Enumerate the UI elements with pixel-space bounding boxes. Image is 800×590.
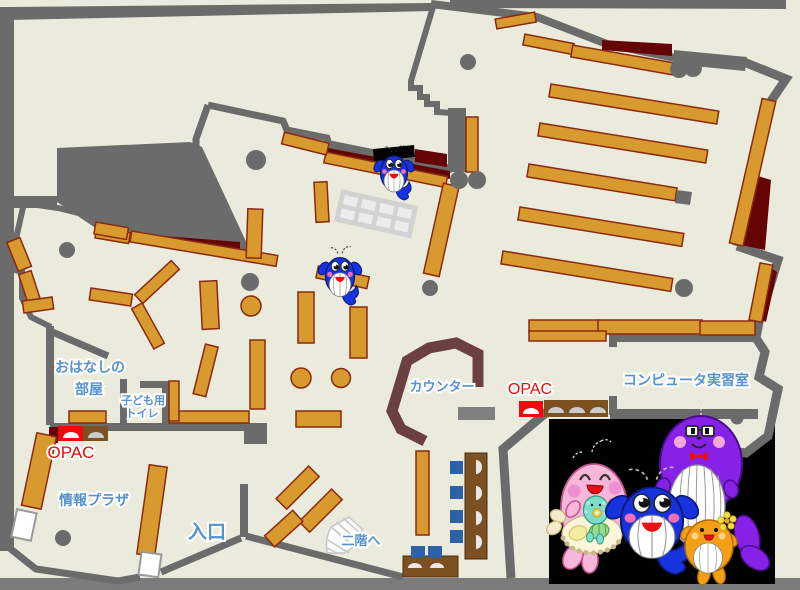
svg-text:コンピュータ実習室: コンピュータ実習室 [623, 372, 749, 388]
svg-text:おはなしの: おはなしの [55, 359, 125, 375]
svg-text:部屋: 部屋 [75, 381, 103, 397]
svg-text:OPAC: OPAC [48, 443, 95, 462]
svg-text:カウンター: カウンター [409, 379, 474, 394]
svg-text:トイレ: トイレ [126, 407, 159, 420]
svg-text:入口: 入口 [188, 521, 226, 543]
svg-text:子ども用: 子ども用 [121, 394, 165, 407]
svg-text:二階へ: 二階へ [341, 533, 380, 548]
svg-text:情報プラザ: 情報プラザ [59, 492, 129, 508]
svg-text:OPAC: OPAC [508, 381, 552, 398]
